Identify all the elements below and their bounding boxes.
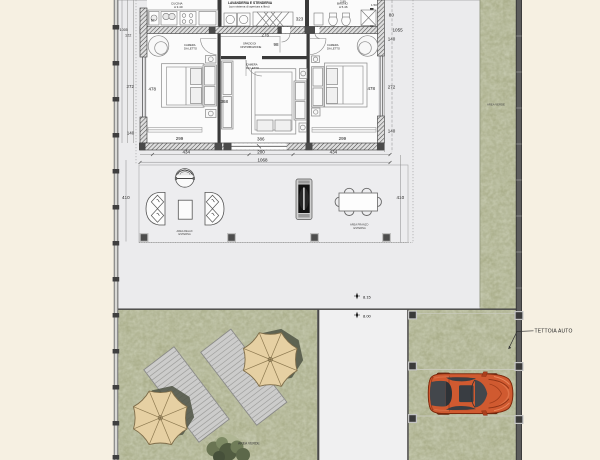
svg-text:434: 434 xyxy=(330,149,338,154)
svg-text:DA LETTO: DA LETTO xyxy=(184,46,197,50)
svg-text:323: 323 xyxy=(296,16,304,21)
svg-text:299: 299 xyxy=(339,136,347,141)
svg-text:386: 386 xyxy=(257,137,265,142)
svg-text:2.99: 2.99 xyxy=(340,0,346,4)
svg-text:200: 200 xyxy=(257,149,265,154)
svg-text:122: 122 xyxy=(125,34,131,38)
svg-text:(con sistema di apertura a lib: (con sistema di apertura a libro) xyxy=(229,5,270,9)
svg-text:478: 478 xyxy=(368,86,376,91)
svg-text:SPAZIO DI: SPAZIO DI xyxy=(243,42,256,46)
svg-text:98: 98 xyxy=(274,42,280,47)
svg-text:1055: 1055 xyxy=(393,27,404,32)
svg-text:DA LETTO: DA LETTO xyxy=(246,66,259,70)
svg-text:368: 368 xyxy=(221,99,229,104)
svg-text:1.50: 1.50 xyxy=(371,3,377,7)
svg-text:DISTRIBUZIONE: DISTRIBUZIONE xyxy=(241,45,262,49)
svg-text:AREA VERDE: AREA VERDE xyxy=(487,103,505,107)
svg-text:8.00: 8.00 xyxy=(363,313,372,318)
svg-text:478: 478 xyxy=(149,87,157,92)
svg-text:80: 80 xyxy=(389,12,395,17)
svg-text:DA LETTO: DA LETTO xyxy=(327,46,340,50)
svg-text:8.15: 8.15 xyxy=(363,294,372,299)
svg-text:1005: 1005 xyxy=(120,28,128,32)
svg-text:ESTERNA: ESTERNA xyxy=(354,226,367,230)
svg-text:434: 434 xyxy=(183,149,191,154)
svg-text:AREA VERDE: AREA VERDE xyxy=(238,442,260,446)
svg-text:A 3.40: A 3.40 xyxy=(174,5,183,9)
svg-text:1068: 1068 xyxy=(258,157,269,162)
svg-text:A 5.46: A 5.46 xyxy=(339,5,348,9)
svg-text:67: 67 xyxy=(151,19,155,23)
svg-text:ESTERNA: ESTERNA xyxy=(179,232,192,236)
svg-text:TETTOIA AUTO: TETTOIA AUTO xyxy=(535,329,573,335)
svg-text:299: 299 xyxy=(176,136,184,141)
